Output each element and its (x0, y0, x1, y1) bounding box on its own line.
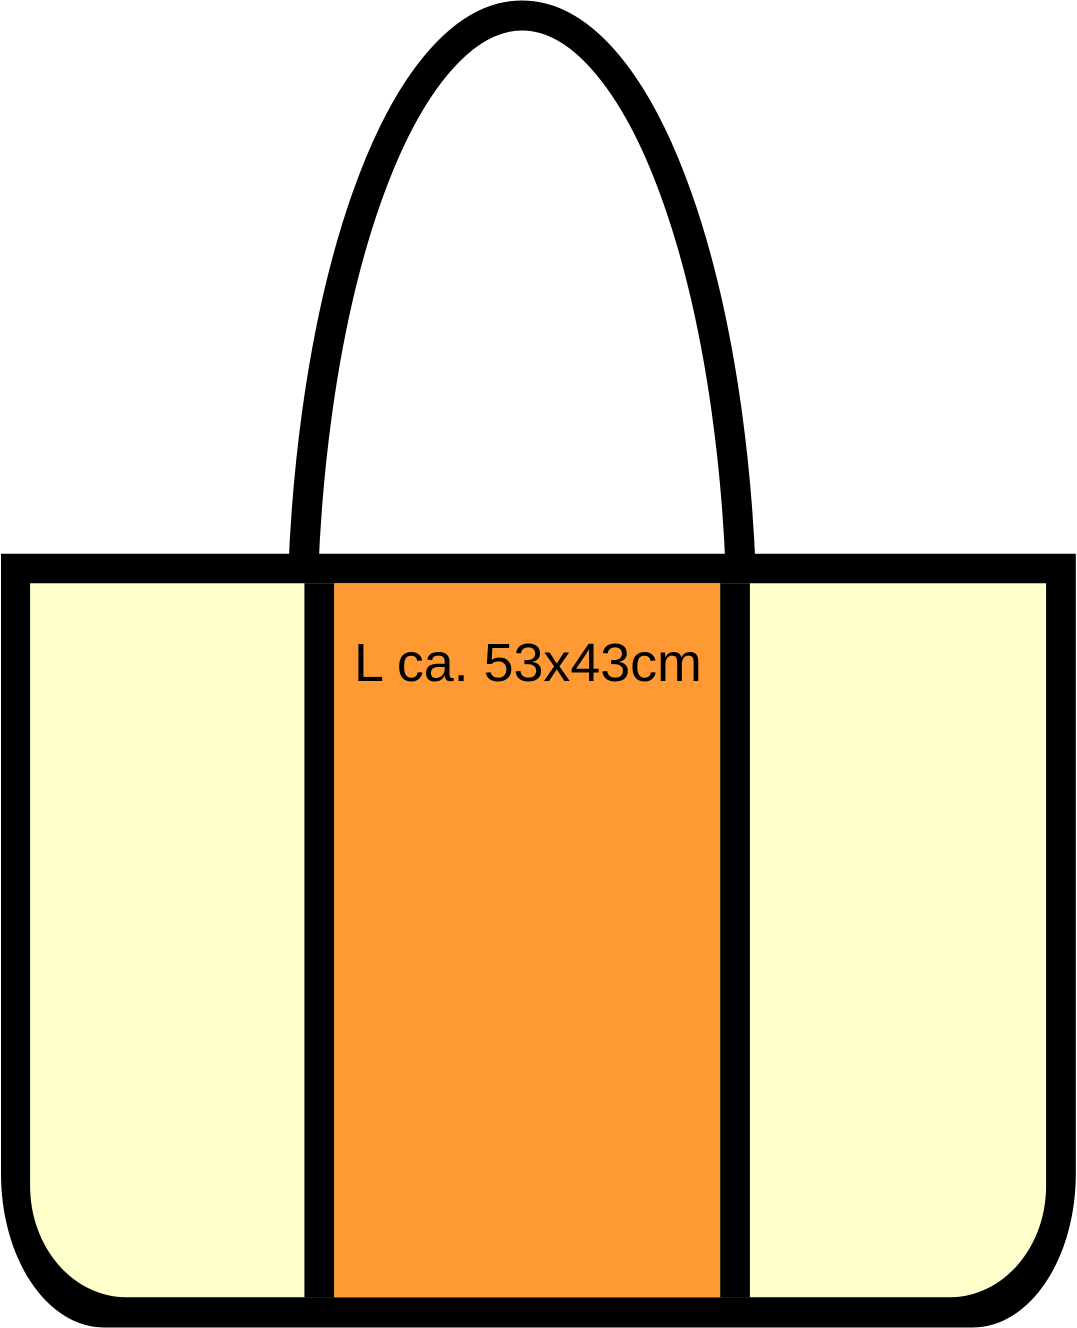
svg-text:L ca. 53x43cm: L ca. 53x43cm (354, 633, 702, 693)
